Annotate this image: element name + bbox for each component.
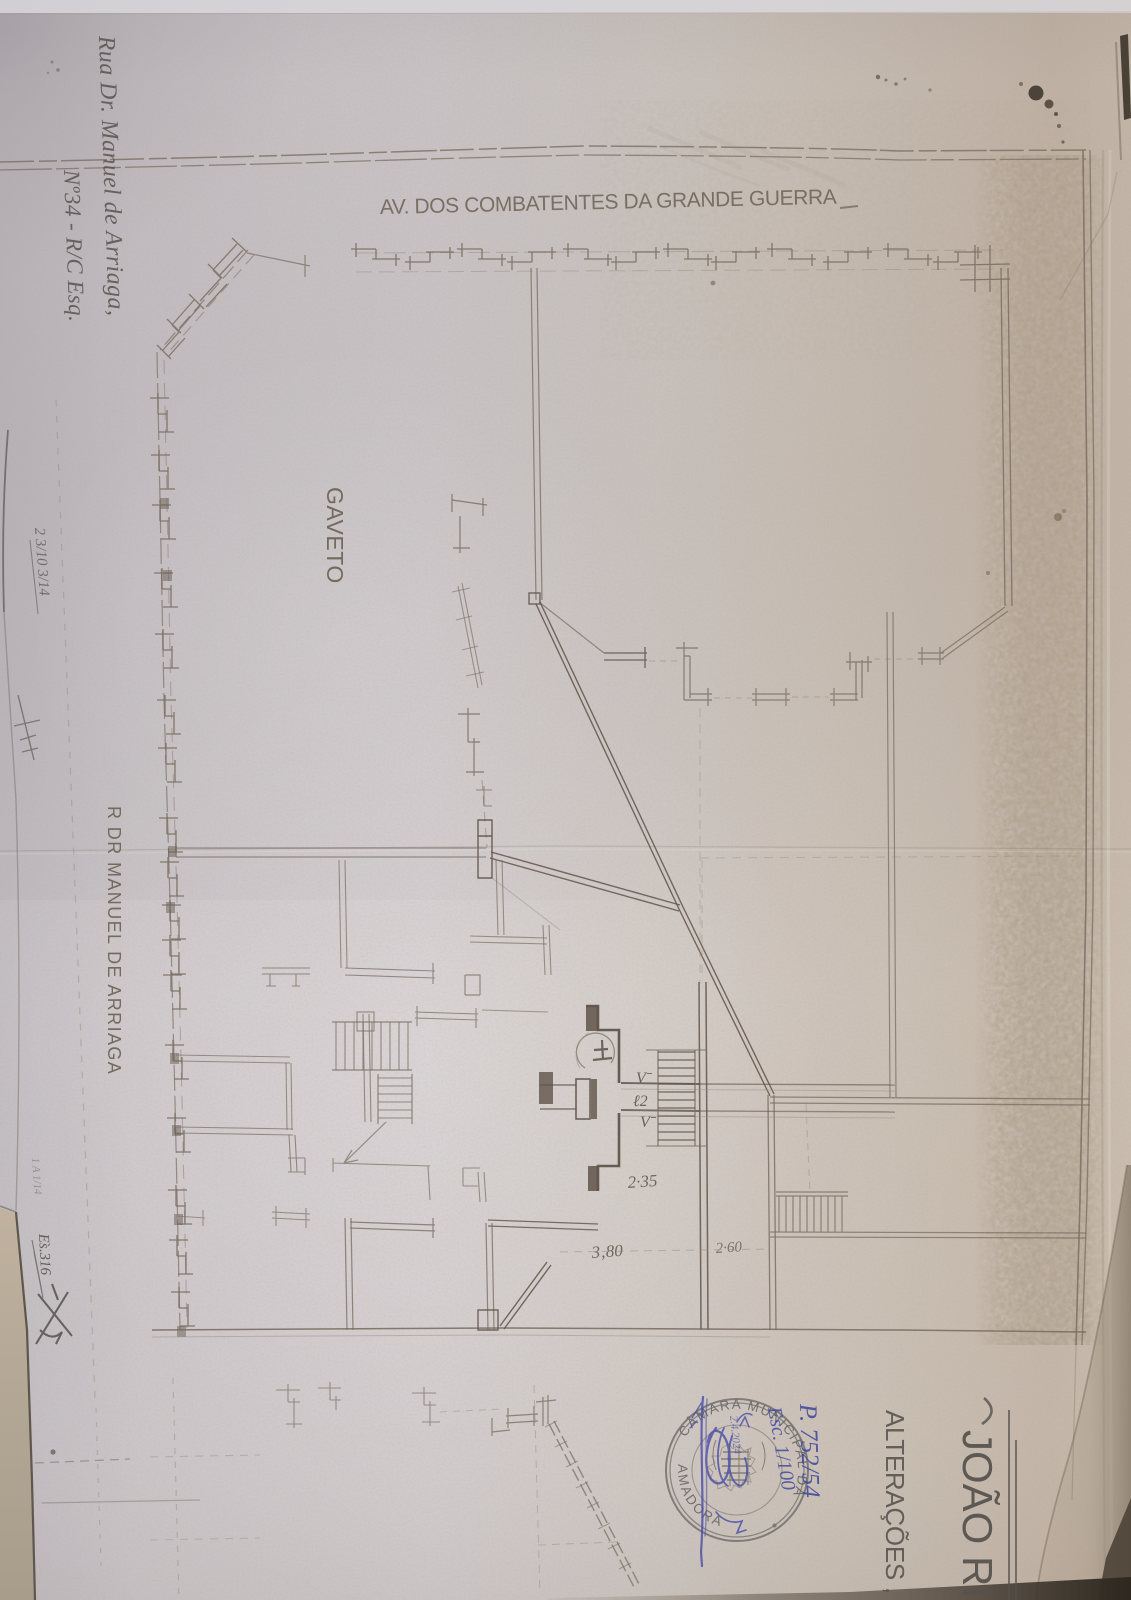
svg-text:2·60: 2·60: [715, 1239, 743, 1257]
svg-text:R DR MANUEL DE ARRIAGA: R DR MANUEL DE ARRIAGA: [104, 806, 124, 1075]
svg-text:JOÃO RIC: JOÃO RIC: [954, 1430, 1001, 1600]
svg-text:ℓ2: ℓ2: [633, 1093, 648, 1110]
svg-text:ALTERAÇÕES ,: ALTERAÇÕES ,: [880, 1410, 910, 1594]
svg-text:GAVETO: GAVETO: [322, 487, 348, 584]
svg-text:Nº34 - R/C Esq.: Nº34 - R/C Esq.: [59, 168, 89, 322]
svg-text:Vˉ: Vˉ: [636, 1070, 653, 1087]
svg-text:2·35: 2·35: [627, 1171, 658, 1192]
